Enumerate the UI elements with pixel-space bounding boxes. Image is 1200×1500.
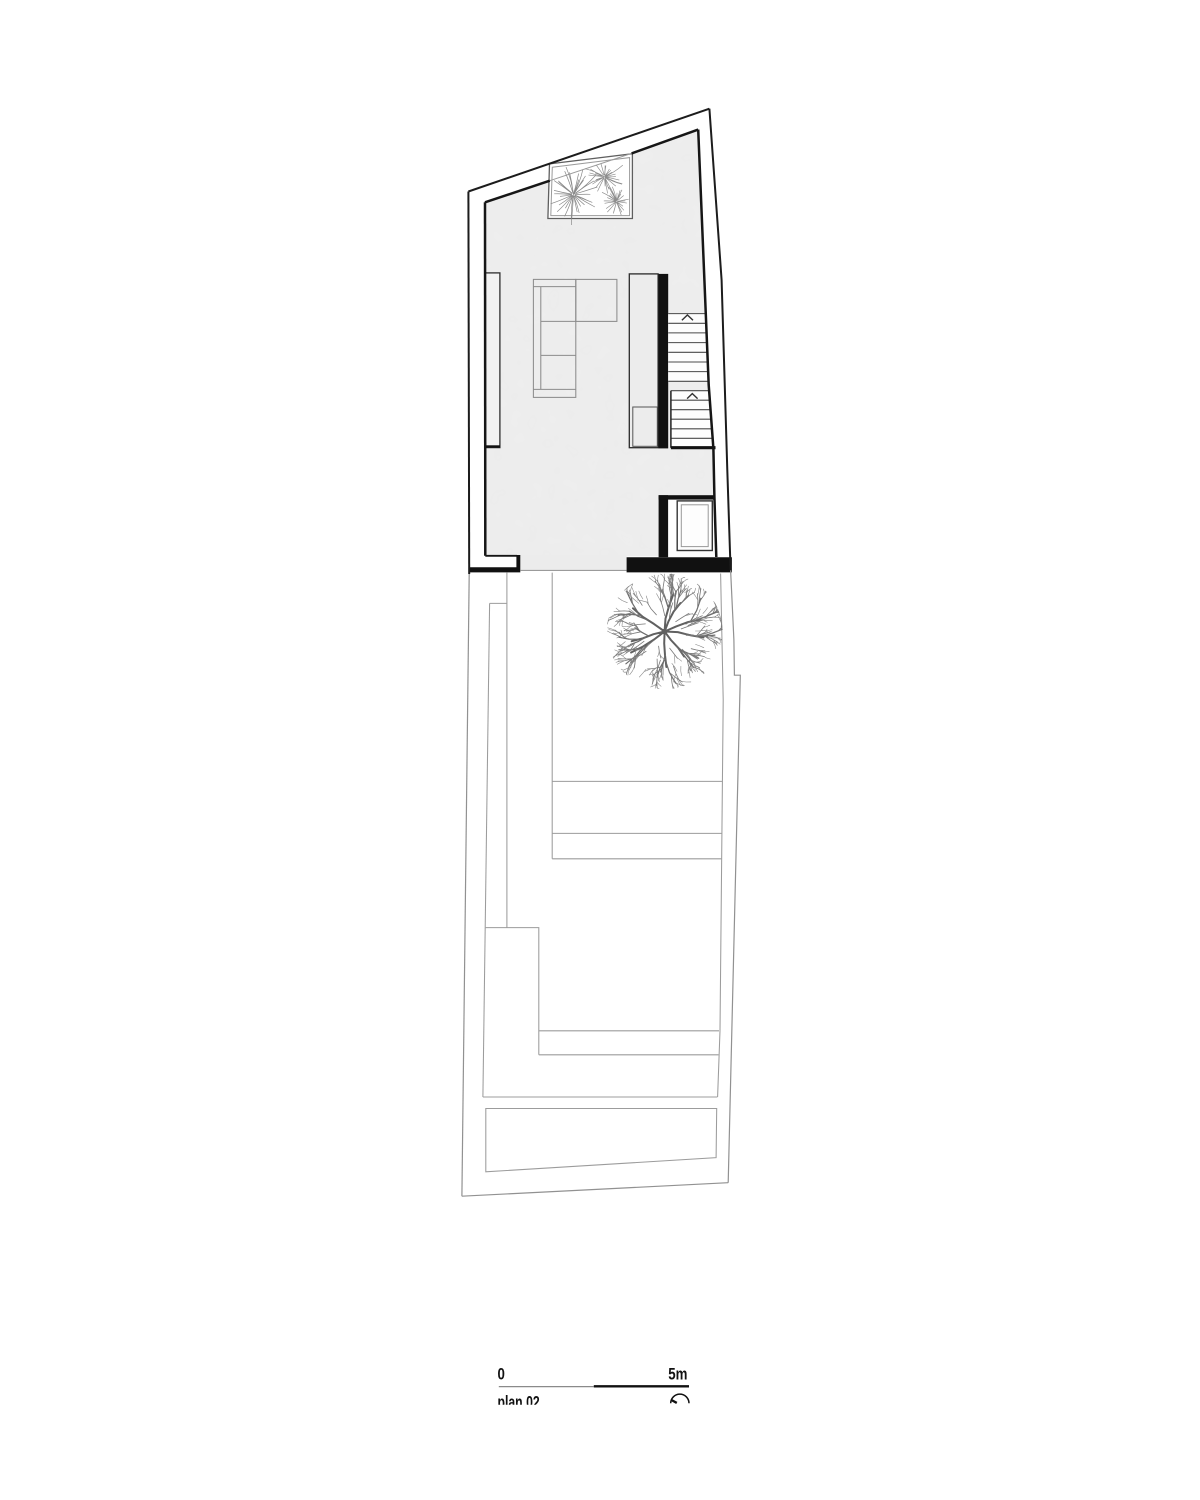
svg-text:0: 0: [498, 1365, 505, 1384]
svg-text:5m: 5m: [668, 1365, 687, 1384]
